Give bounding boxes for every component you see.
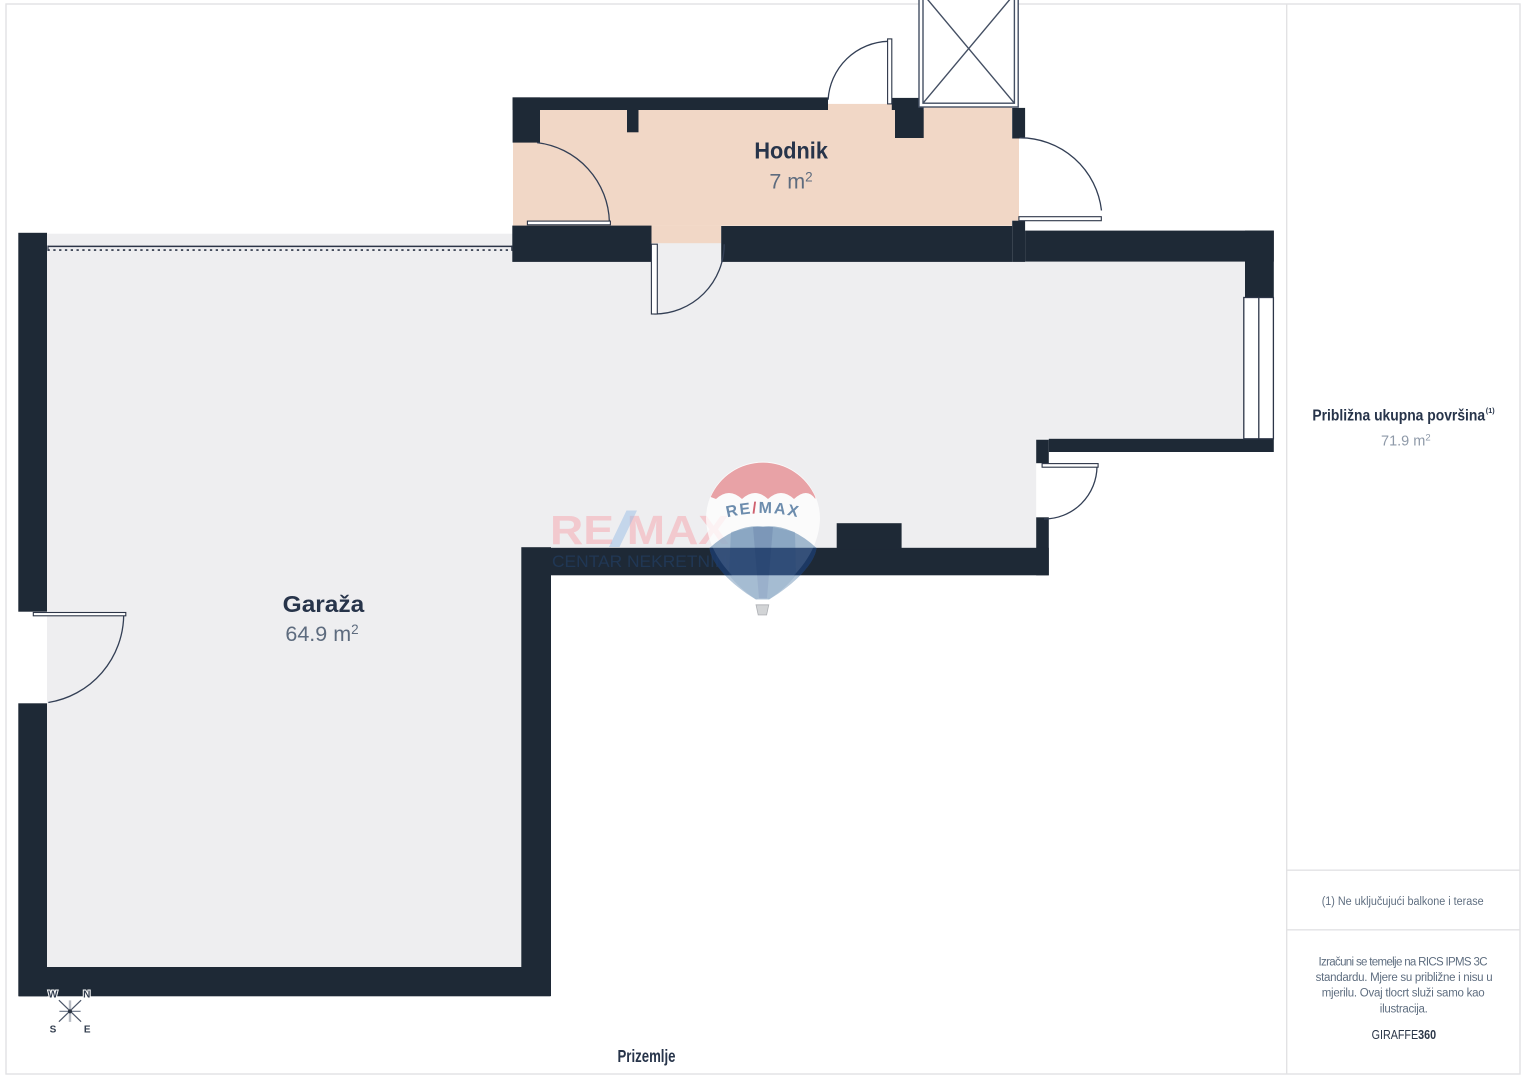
svg-text:Hodnik: Hodnik [754, 137, 828, 163]
svg-text:71.9 m2: 71.9 m2 [1381, 433, 1431, 450]
svg-text:S: S [50, 1025, 57, 1036]
svg-text:64.9 m2: 64.9 m2 [285, 622, 358, 646]
svg-text:W: W [48, 990, 58, 1001]
svg-text:RE/MAX: RE/MAX [550, 507, 729, 553]
svg-text:(1): (1) [1486, 406, 1495, 415]
svg-text:(1) Ne uključujući balkone i t: (1) Ne uključujući balkone i terase [1322, 896, 1484, 908]
svg-text:GIRAFFE360: GIRAFFE360 [1372, 1028, 1437, 1042]
svg-text:Garaža: Garaža [283, 591, 365, 617]
svg-text:N: N [83, 990, 90, 1001]
svg-text:standardu. Mjere su približne: standardu. Mjere su približne i nisu u [1316, 972, 1493, 984]
svg-text:Izračuni se temelje na RICS IP: Izračuni se temelje na RICS IPMS 3C [1319, 956, 1488, 968]
svg-text:E: E [84, 1025, 91, 1036]
svg-text:Približna ukupna površina: Približna ukupna površina [1312, 408, 1485, 425]
svg-text:ilustracija.: ilustracija. [1380, 1003, 1428, 1015]
svg-text:Prizemlje: Prizemlje [618, 1046, 676, 1066]
svg-text:mjerilu. Ovaj tlocrt služi sam: mjerilu. Ovaj tlocrt služi samo kao [1322, 988, 1485, 1000]
